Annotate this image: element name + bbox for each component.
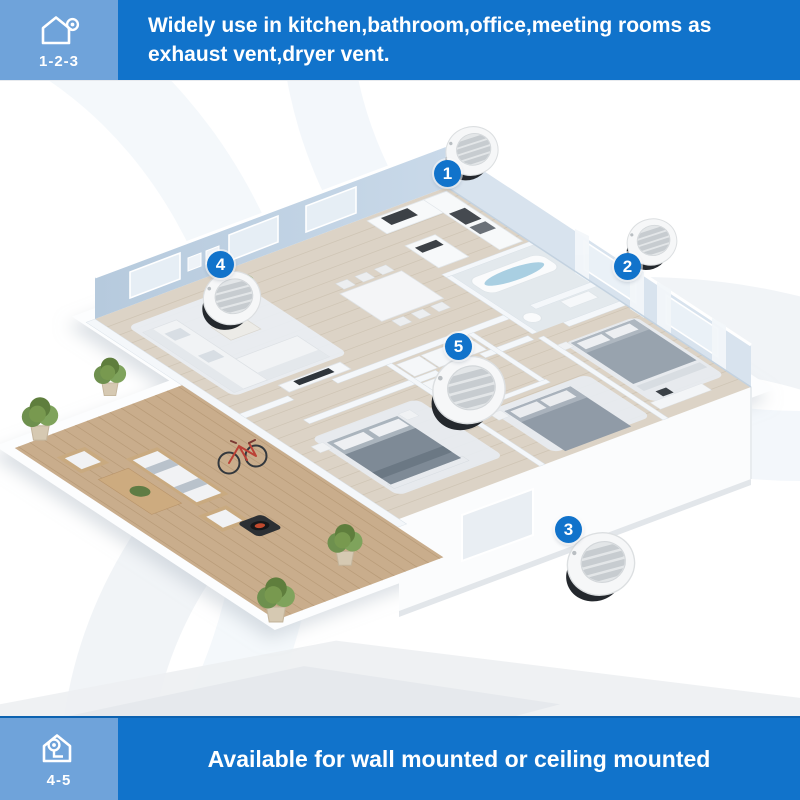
house-wall-vent-icon xyxy=(36,11,82,51)
location-marker-2: 2 xyxy=(614,253,641,280)
bottom-banner: 4-5 Available for wall mounted or ceilin… xyxy=(0,716,800,800)
top-banner: 1-2-3 Widely use in kitchen,bathroom,off… xyxy=(0,0,800,80)
bottom-corner-badge: 4-5 xyxy=(0,718,118,800)
location-marker-5: 5 xyxy=(445,333,472,360)
location-marker-3: 3 xyxy=(555,516,582,543)
top-banner-title: Widely use in kitchen,bathroom,office,me… xyxy=(148,11,773,70)
location-marker-1: 1 xyxy=(434,160,461,187)
floor-plan-scene: 1 2 3 4 5 xyxy=(0,80,800,717)
isometric-floor-plan-illustration xyxy=(0,81,800,717)
plant-1 xyxy=(94,358,126,396)
top-badge-label: 1-2-3 xyxy=(39,53,79,70)
bottom-badge-label: 4-5 xyxy=(47,772,72,789)
top-corner-badge: 1-2-3 xyxy=(0,0,118,80)
location-marker-4: 4 xyxy=(207,251,234,278)
bottom-banner-title: Available for wall mounted or ceiling mo… xyxy=(208,746,711,773)
house-ceiling-vent-icon xyxy=(36,730,82,770)
